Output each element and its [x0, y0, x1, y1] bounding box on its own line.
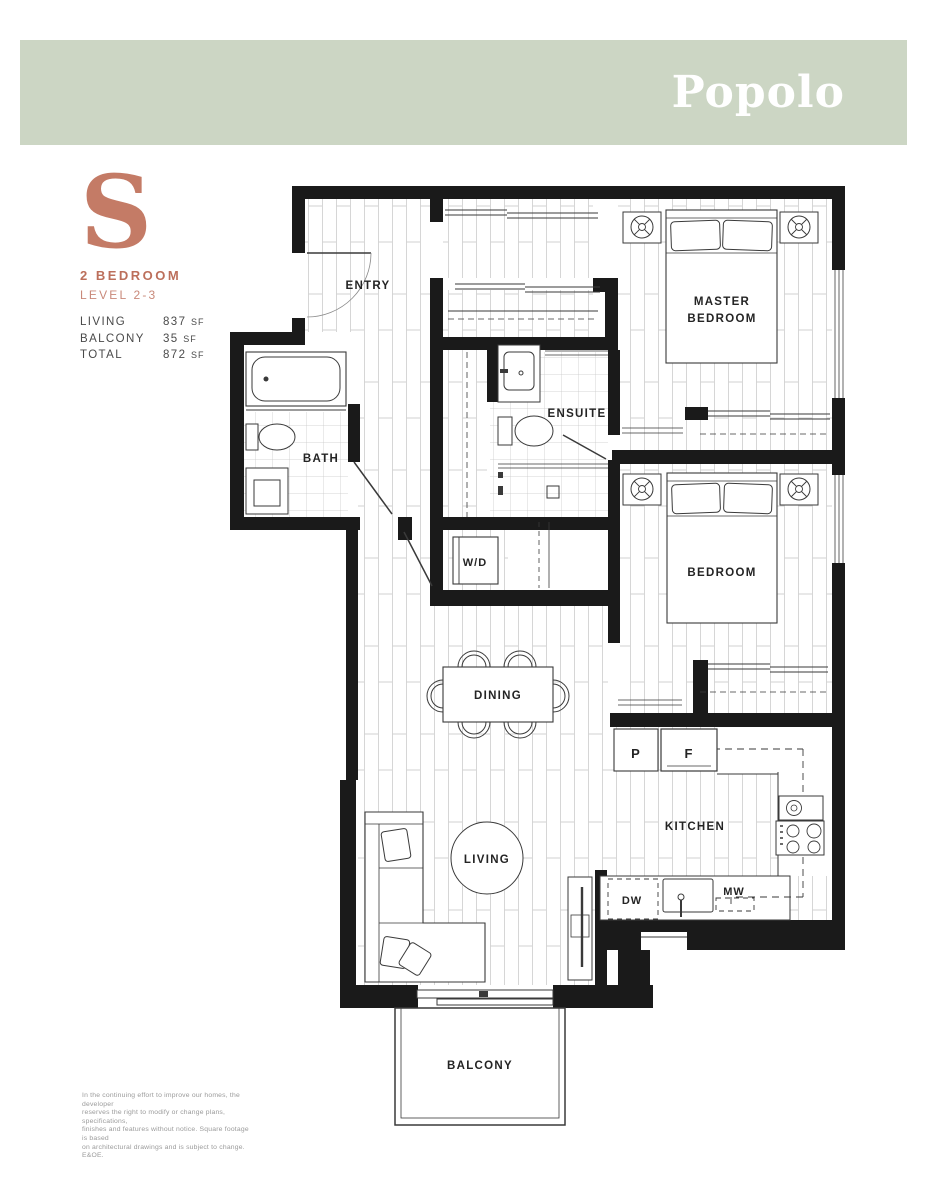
bath-sink-counter-icon: [246, 468, 288, 514]
room-entry-floor: [305, 199, 430, 332]
label-pantry: P: [631, 746, 641, 761]
counter-top-fill: [717, 727, 778, 774]
nightstand-lamp-icon: [623, 212, 661, 243]
shower-control-icon: [498, 472, 503, 478]
stat-value: 837 SF: [163, 316, 205, 328]
wall: [346, 517, 358, 780]
wall: [595, 920, 845, 950]
wall: [292, 318, 305, 345]
sofa-pillow-icon: [381, 828, 411, 862]
disclaimer-line: In the continuing effort to improve our …: [82, 1092, 252, 1109]
wall: [292, 186, 305, 253]
wall: [348, 404, 360, 462]
door-handle-icon: [479, 991, 488, 997]
stat-value: 35 SF: [163, 333, 197, 345]
master-bed-icon: [666, 210, 777, 363]
wall: [605, 278, 618, 350]
room-label-master-line1: MASTER: [694, 296, 750, 308]
disclaimer-line: reserves the right to modify or change p…: [82, 1109, 252, 1126]
floor-plan: ENTRY BATH ENSUITE W/D MASTER BEDROOM BE…: [210, 170, 870, 1145]
tv-console-icon: [568, 877, 592, 980]
wall: [230, 332, 244, 530]
wall: [832, 186, 845, 270]
nightstand-lamp-icon: [780, 212, 818, 243]
ensuite-strip-floor: [443, 350, 487, 517]
wall: [610, 713, 845, 727]
wall: [340, 780, 356, 1008]
wall: [430, 199, 443, 222]
wall: [618, 950, 650, 988]
nightstand-lamp-icon: [780, 474, 818, 505]
ensuite-toilet-bowl-icon: [515, 416, 553, 446]
kitchen-sink-icon: [663, 879, 713, 912]
wall: [292, 186, 845, 199]
vanity-faucet-icon: [500, 369, 508, 373]
toilet-bowl-icon: [259, 424, 295, 450]
room-label-wd: W/D: [463, 557, 487, 569]
room-label-bath: BATH: [303, 453, 339, 465]
wall: [608, 350, 620, 435]
room-label-bedroom: BEDROOM: [687, 567, 756, 579]
bathtub-drain-icon: [264, 377, 269, 382]
wall: [430, 278, 443, 592]
master-closet-floor: [443, 290, 593, 337]
room-label-living: LIVING: [464, 854, 510, 866]
wall-notch: [641, 932, 687, 950]
stat-label: BALCONY: [80, 333, 163, 345]
wall: [487, 345, 498, 402]
wall: [832, 563, 845, 923]
wall: [430, 517, 620, 530]
brand-logo: Popolo: [672, 67, 845, 118]
wall: [832, 398, 845, 475]
bed-icon: [667, 473, 777, 623]
toilet-tank-icon: [246, 424, 258, 450]
stove-icon: [776, 796, 824, 855]
brand-banner: Popolo: [20, 40, 907, 145]
label-fridge: F: [685, 746, 694, 761]
stat-label: TOTAL: [80, 349, 163, 361]
room-label-dining: DINING: [474, 690, 522, 702]
label-microwave: MW: [723, 886, 745, 898]
room-label-balcony: BALCONY: [447, 1060, 513, 1072]
wall: [230, 517, 360, 530]
disclaimer: In the continuing effort to improve our …: [82, 1092, 252, 1161]
room-label-kitchen: KITCHEN: [665, 821, 725, 833]
disclaimer-line: finishes and features without notice. Sq…: [82, 1126, 252, 1143]
wall: [693, 660, 708, 720]
room-label-ensuite: ENSUITE: [548, 408, 607, 420]
shower-head-icon: [498, 486, 503, 495]
wall: [612, 450, 832, 464]
wall: [398, 517, 412, 540]
hall-nook-floor: [443, 199, 593, 278]
wall: [608, 460, 620, 643]
ensuite-toilet-tank-icon: [498, 417, 512, 445]
bathtub-icon: [246, 352, 346, 406]
wall: [430, 590, 620, 606]
nightstand-lamp-icon: [623, 474, 661, 505]
label-dishwasher: DW: [622, 895, 642, 907]
wall: [553, 985, 653, 1008]
stat-label: LIVING: [80, 316, 163, 328]
patio-sliding-door-icon: [437, 999, 553, 1005]
room-label-master-line2: BEDROOM: [687, 313, 756, 325]
stat-value: 872 SF: [163, 349, 205, 361]
wall: [685, 407, 708, 420]
disclaimer-line: on architectural drawings and is subject…: [82, 1144, 252, 1161]
room-label-entry: ENTRY: [345, 280, 390, 292]
corridor-floor: [358, 332, 430, 606]
